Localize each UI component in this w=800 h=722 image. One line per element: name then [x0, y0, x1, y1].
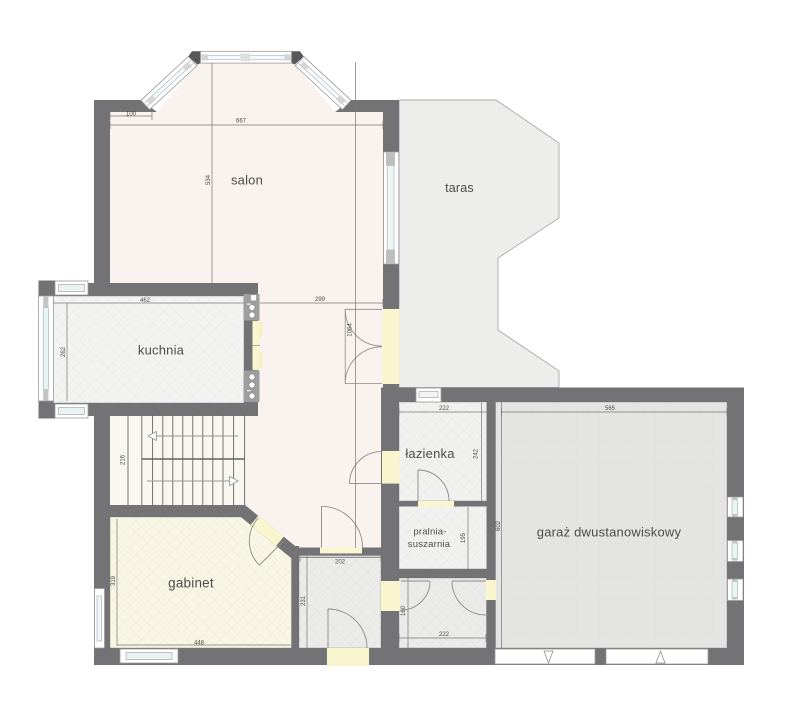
svg-text:667: 667: [236, 119, 247, 125]
svg-text:222: 222: [439, 406, 450, 412]
svg-text:100: 100: [126, 112, 137, 118]
svg-text:216: 216: [121, 454, 127, 465]
svg-text:462: 462: [140, 298, 151, 304]
svg-text:222: 222: [439, 632, 450, 638]
svg-text:448: 448: [194, 641, 205, 647]
svg-text:suszarnia: suszarnia: [408, 539, 451, 550]
svg-text:319: 319: [111, 575, 117, 586]
svg-text:534: 534: [206, 174, 212, 185]
svg-text:299: 299: [315, 297, 326, 303]
svg-text:202: 202: [335, 560, 346, 566]
svg-text:1064: 1064: [348, 323, 354, 337]
svg-text:242: 242: [474, 448, 480, 459]
svg-text:salon: salon: [231, 173, 263, 188]
svg-text:kuchnia: kuchnia: [138, 343, 185, 358]
svg-text:195: 195: [461, 532, 467, 543]
svg-text:565: 565: [605, 406, 616, 412]
svg-text:160: 160: [401, 605, 407, 616]
svg-text:pralnia-: pralnia-: [413, 527, 446, 538]
svg-text:łazienka: łazienka: [405, 446, 455, 461]
svg-text:231: 231: [301, 595, 307, 606]
svg-text:262: 262: [61, 346, 67, 357]
svg-text:taras: taras: [445, 181, 474, 195]
svg-text:gabinet: gabinet: [168, 576, 214, 591]
svg-text:602: 602: [496, 520, 502, 531]
svg-text:garaż dwustanowiskowy: garaż dwustanowiskowy: [537, 525, 682, 540]
